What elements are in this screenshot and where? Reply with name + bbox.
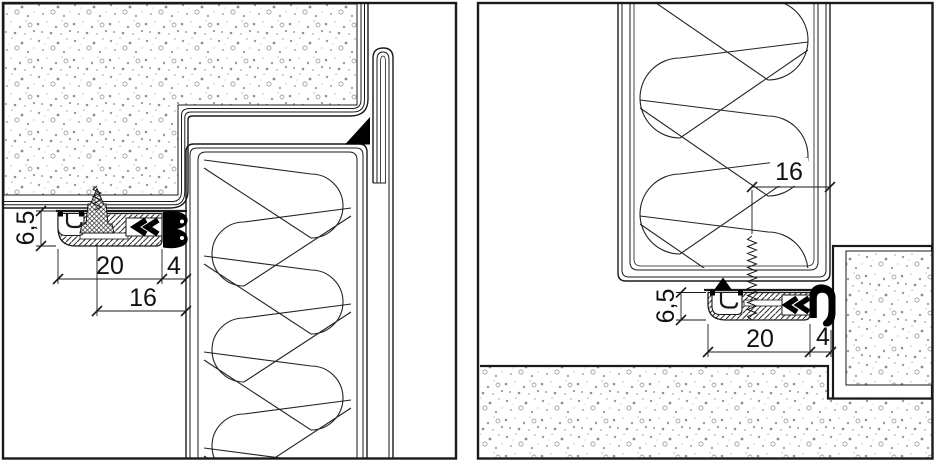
door-leaf xyxy=(618,0,830,312)
right-panel-section: 16 6,5 20 4 xyxy=(478,0,933,459)
rubber-detail xyxy=(180,220,184,224)
rubber-wedge-lip xyxy=(714,278,732,291)
dim-profile-width: 20 xyxy=(746,325,774,353)
claw-prong xyxy=(58,212,63,217)
concrete-wall xyxy=(4,4,357,195)
dim-fixing-offset: 16 xyxy=(775,158,803,186)
left-panel-section: 6,5 20 4 16 xyxy=(3,3,456,466)
dim-profile-height: 6,5 xyxy=(652,289,680,324)
rubber-detail xyxy=(180,236,184,240)
rubber-hook-seal xyxy=(810,284,836,326)
dim-seal-gap: 4 xyxy=(167,252,181,280)
side-wall-block xyxy=(833,246,932,399)
frame-stop-flange xyxy=(373,48,393,458)
seal-section-drawing: 6,5 20 4 16 xyxy=(0,0,940,466)
insulation-coils xyxy=(204,160,351,466)
rubber-bulb-seal xyxy=(163,211,188,248)
claw-prong xyxy=(710,290,715,296)
dim-seal-gap: 4 xyxy=(816,323,830,351)
claw-prong xyxy=(738,290,743,296)
door-leaf xyxy=(186,144,367,466)
dim-profile-width: 20 xyxy=(96,252,124,280)
screw-channel xyxy=(80,233,128,239)
technical-drawing: 6,5 20 4 16 xyxy=(0,0,940,466)
dim-fixing-offset: 16 xyxy=(129,284,157,312)
claw-prong xyxy=(79,212,84,217)
corner-wedge-seal xyxy=(345,117,370,145)
dim-profile-height: 6,5 xyxy=(12,211,40,246)
dimensions-right: 16 6,5 20 4 xyxy=(652,158,836,357)
insulation-coils xyxy=(640,0,808,312)
